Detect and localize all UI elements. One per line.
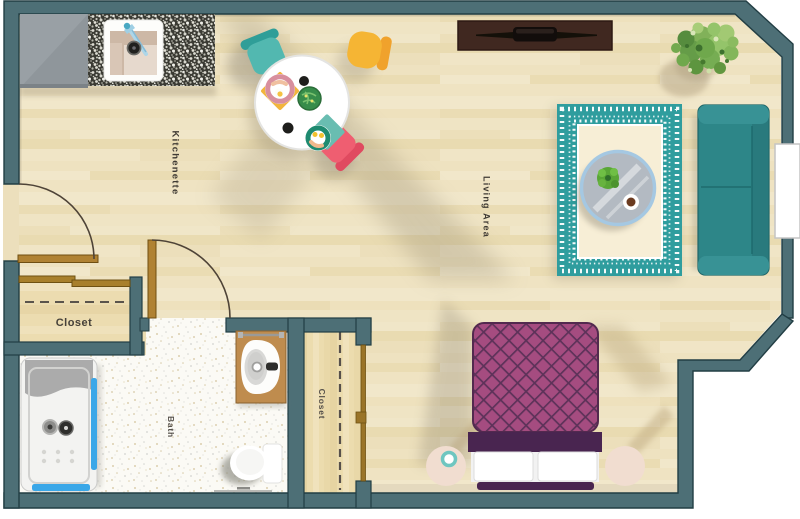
svg-text:Bath: Bath [166, 416, 176, 438]
svg-text:Kitchenette: Kitchenette [169, 131, 180, 196]
svg-text:Closet: Closet [56, 317, 93, 329]
svg-text:Living Area: Living Area [482, 176, 492, 238]
svg-text:Closet: Closet [317, 389, 327, 420]
